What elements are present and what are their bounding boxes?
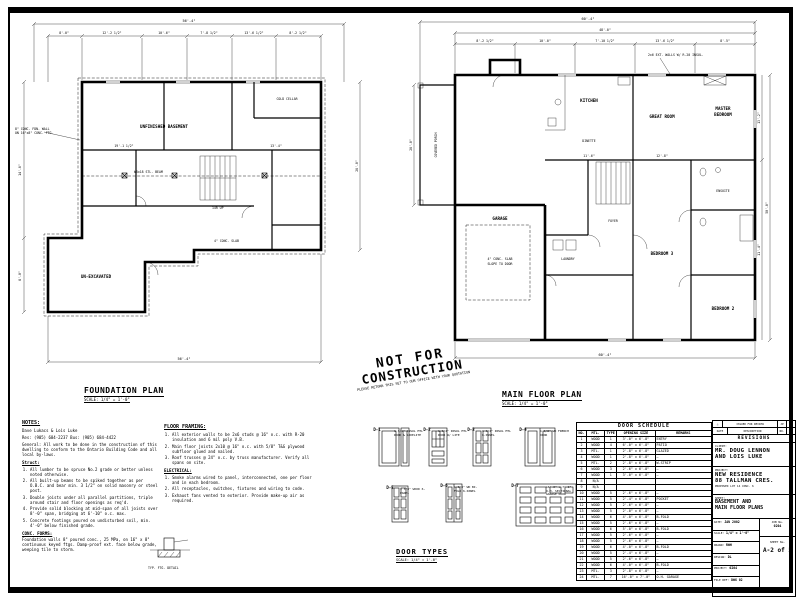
note-label: ON 16"x8" CONC. FTG.	[15, 131, 53, 135]
dim-label: 7'-8 1/2"	[200, 31, 217, 35]
notes-struct-label: Struct:	[22, 460, 160, 465]
note-label: SLOPE TO DOOR	[488, 262, 513, 266]
cell-remarks: O.H. GARAGE	[655, 575, 711, 581]
field-label: DESIGN:	[714, 555, 726, 559]
dim-label: 8'-2 1/2"	[476, 39, 493, 43]
note-label: 14R UP	[212, 206, 224, 210]
rev-col-by: BY	[787, 428, 795, 434]
door-schedule-table: DOOR SCHEDULE NO. MTL. TYPE OPENING SIZE…	[576, 422, 712, 581]
door-schedule-row: 24 MTL. 7 16'-0" x 7'-0" O.H. GARAGE	[577, 575, 712, 581]
dim-label: 12'-8"	[656, 154, 668, 158]
notes-forms: Foundation walls 8" poured conc., 25 MPa…	[22, 537, 160, 552]
notes-intro: Res: (905) 684-2237 Bus: (905) 684-4422	[22, 435, 160, 440]
field-label: SCALE:	[714, 531, 724, 535]
note-label: 2x6 EXT. WALLS W/ R-20 INSUL.	[648, 53, 704, 57]
dim-label: 8'-0"	[59, 31, 69, 35]
rev-col-date: DATE	[713, 428, 728, 434]
field-value: DWG 02	[731, 578, 743, 582]
cell-no: 24	[577, 575, 587, 581]
dim-label: 12'-2 1/2"	[102, 31, 121, 35]
field-value: 0204	[729, 566, 737, 570]
room-label: COVERED PORCH	[434, 132, 438, 157]
dim-label: 14'-6"	[18, 164, 22, 176]
room-label: FOYER	[608, 219, 618, 223]
main-floor-plan-scale: SCALE: 1/4" = 1'-0"	[502, 401, 548, 407]
note-item: Double joists under all parallel partiti…	[30, 495, 160, 505]
note-label: W8x18 STL. BEAM	[134, 170, 163, 174]
job-number-cell: JOB No. 0204	[760, 519, 795, 537]
notes-heading: NOTES:	[22, 420, 160, 426]
field-row: DRAWN: RWH	[713, 542, 759, 554]
door-note: 1 3/8" WD BI-FOLD 6-PANEL	[454, 486, 484, 493]
note-item: All receptacles, switches, fixtures and …	[172, 486, 314, 491]
field-row: SCALE: 1/4" = 1'-0"	[713, 531, 759, 543]
note-item: Main floor joists 2x10 @ 16" o.c. with 5…	[172, 444, 314, 454]
room-label: COLD CELLAR	[276, 97, 297, 101]
door-type-d5: D-5 1 3/8" WOOD 6-PANEL	[380, 484, 400, 490]
dim-label: 10'-0"	[539, 39, 551, 43]
foundation-plan-drawing: 56'-4" 8'-0" 12'-2 1/2" 10'-6" 7'-8 1/2"…	[14, 10, 370, 410]
dim-label: 26'-0"	[355, 160, 359, 172]
revision-chk: CP	[787, 421, 795, 427]
notes-forms-label: CONC. FORMS:	[22, 531, 160, 536]
field-row: DESIGN: DL	[713, 554, 759, 566]
note-label: 4" CONC. SLAB	[488, 257, 513, 261]
room-label: DINETTE	[582, 139, 596, 143]
dim-label: 13'-4"	[270, 144, 282, 148]
revisions-label: REVISIONS	[713, 435, 795, 442]
dim-label: 13'-6 1/2"	[655, 39, 674, 43]
revision-issue: ISSUED FOR REVIEW	[723, 421, 778, 427]
sheet-title: MAIN FLOOR PLANS	[715, 506, 793, 512]
field-label: FILE REF:	[714, 578, 729, 582]
notes-intro: Dave Lukacs & Lois Luke	[22, 428, 160, 433]
electrical-label: ELECTRICAL:	[164, 468, 314, 473]
note-item: All exterior walls to be 2x6 studs @ 16"…	[172, 432, 314, 442]
client-name: AND LOIS LUKE	[715, 454, 793, 460]
dim-label: 11'-6"	[583, 154, 595, 158]
door-type-d2: D-2 1 3/4" INSUL MTL DOOR W/ LITE	[416, 426, 438, 432]
field-label: DATE:	[714, 520, 722, 524]
client-box: CLIENT: MR. DOUG LENNON AND LOIS LUKE	[713, 443, 795, 467]
room-label: UN-EXCAVATED	[81, 274, 112, 279]
door-note: 16'-0" x 7'-0" O.H. SECTIONAL GARAGE DOO…	[546, 486, 576, 497]
room-label: UNFINISHED BASEMENT	[140, 124, 188, 129]
sheet-number-label: SHEET No.	[760, 540, 795, 544]
room-label: GREAT ROOM	[649, 114, 675, 119]
field-label: DRAWN:	[714, 543, 724, 547]
dim-label: 56'-4"	[183, 19, 196, 23]
field-row: FILE REF: DWG 02	[713, 577, 759, 589]
dim-label: 7'-10 1/2"	[595, 39, 614, 43]
room-label: ENSUITE	[716, 189, 730, 193]
dim-label: 10'-6"	[158, 31, 170, 35]
framing-heading: FLOOR FRAMING:	[164, 424, 314, 430]
title-block-fields: DATE: JAN 2002 SCALE: 1/4" = 1'-0" DRAWN…	[713, 519, 795, 589]
dim-label: 13'-6 1/2"	[244, 31, 263, 35]
sheet-number-cell: SHEET No. A-2 of 5	[760, 537, 795, 589]
footing-detail-sketch	[148, 536, 192, 570]
foundation-plan-scale: SCALE: 1/4" = 1'-0"	[84, 397, 130, 403]
field-row: DATE: JAN 2002	[713, 519, 759, 531]
dim-label: 8'-0"	[18, 271, 22, 281]
dim-label: 26'-0"	[409, 139, 413, 151]
foundation-plan-title: FOUNDATION PLAN	[84, 386, 164, 397]
title-block: △ ISSUED FOR REVIEW JP CP DATE DESCRIPTI…	[712, 420, 796, 597]
dim-label: 56'-4"	[178, 357, 191, 361]
note-item: Exhaust fans vented to exterior. Provide…	[172, 493, 314, 503]
door-type-d1: D-1 1 3/4" INSUL MTL DOOR & SIDELITE	[360, 426, 394, 432]
door-note: 1 3/8" WD FRENCH DOOR	[540, 430, 570, 437]
rev-col-no: NO.	[778, 428, 787, 434]
electrical-list: Smoke alarms wired to panel, interconnec…	[172, 475, 314, 503]
field-value: RWH	[726, 543, 732, 547]
sheet-title-box: SHEET: BASEMENT AND MAIN FLOOR PLANS	[713, 495, 795, 519]
room-label: BEDROOM 2	[712, 306, 735, 311]
room-label: LAUNDRY	[561, 257, 575, 261]
notes-general: General: All work to be done in the cons…	[22, 442, 160, 457]
dim-label: 60'-4"	[582, 17, 595, 21]
sheet-number: A-2 of 5	[760, 547, 795, 554]
door-note: 1 3/8" WOOD 6-PANEL	[400, 488, 430, 495]
cell-mtl: MTL.	[587, 575, 605, 581]
framing-list: All exterior walls to be 2x6 studs @ 16"…	[172, 432, 314, 465]
note-item: Concrete footings poured on undisturbed …	[30, 518, 160, 528]
dim-label: 13'-2"	[757, 112, 761, 124]
dim-label: 48'-0"	[599, 28, 611, 32]
notes-struct-list: All lumber to be spruce No.2 grade or be…	[30, 467, 160, 528]
room-label: BEDROOM 3	[651, 251, 674, 256]
field-row: PROJECT: 0204	[713, 566, 759, 578]
notes-column-1: NOTES: Dave Lukacs & Lois Luke Res: (905…	[22, 420, 160, 554]
note-item: All lumber to be spruce No.2 grade or be…	[30, 467, 160, 477]
room-label: BEDROOM	[714, 112, 732, 117]
room-label: GARAGE	[492, 216, 508, 221]
cell-size: 16'-0" x 7'-0"	[617, 575, 655, 581]
revision-triangle-icon: △	[713, 421, 723, 427]
note-item: All built-up beams to be spiked together…	[30, 478, 160, 493]
door-types-scale: SCALE: 1/4" = 1'-0"	[396, 558, 437, 563]
revision-strip: △ ISSUED FOR REVIEW JP CP DATE DESCRIPTI…	[713, 421, 795, 443]
field-value: 1/4" = 1'-0"	[726, 531, 749, 535]
door-type-d4: D-4 1 3/8" WD FRENCH DOOR	[506, 426, 540, 432]
dim-label: 8'-5"	[720, 39, 730, 43]
main-floor-plan-title: MAIN FLOOR PLAN	[502, 390, 582, 401]
job-number: 0204	[774, 524, 782, 528]
door-schedule-title: DOOR SCHEDULE	[577, 423, 712, 431]
room-label: MASTER	[715, 106, 731, 111]
note-item: Provide solid blocking at mid-span of al…	[30, 506, 160, 516]
project-box: PROJECT: NEW RESIDENCE 88 TALLMAN CRES. …	[713, 467, 795, 495]
footing-detail-label: TYP. FTG. DETAIL	[148, 566, 179, 570]
note-item: Roof trusses @ 24" o.c. by truss manufac…	[172, 455, 314, 465]
revision-by: JP	[778, 421, 787, 427]
note-label: 4" CONC. SLAB	[214, 239, 239, 243]
door-type-d7: D-7 16'-0" x 7'-0" O.H. SECTIONAL GARAGE…	[484, 482, 546, 488]
door-types-title: DOOR TYPES	[396, 548, 448, 557]
door-type-d3: D-3 1 3/4" INSUL MTL 6-PANEL	[460, 426, 482, 432]
field-value: JAN 2002	[724, 520, 739, 524]
dim-label: 19'-1 1/2"	[114, 144, 133, 148]
dim-label: 60'-4"	[599, 353, 612, 357]
dim-label: 11'-4"	[757, 244, 761, 256]
door-type-d6: D-6 1 3/8" WD BI-FOLD 6-PANEL	[434, 482, 454, 488]
dim-label: 8'-2 1/2"	[289, 31, 306, 35]
field-value: DL	[728, 555, 732, 559]
field-label: PROJECT:	[714, 566, 727, 570]
door-types-section: D-1 1 3/4" INSUL MTL DOOR & SIDELITE D-2…	[356, 422, 571, 574]
cell-type: 7	[605, 575, 617, 581]
dim-label: 50'-0"	[765, 202, 769, 214]
notes-column-2: FLOOR FRAMING: All exterior walls to be …	[164, 424, 314, 505]
note-item: Smoke alarms wired to panel, interconnec…	[172, 475, 314, 485]
rev-col-desc: DESCRIPTION	[728, 428, 778, 434]
project-detail: PROPOSED LOT 14 CONC. 6	[715, 484, 793, 488]
room-label: KITCHEN	[580, 98, 598, 103]
